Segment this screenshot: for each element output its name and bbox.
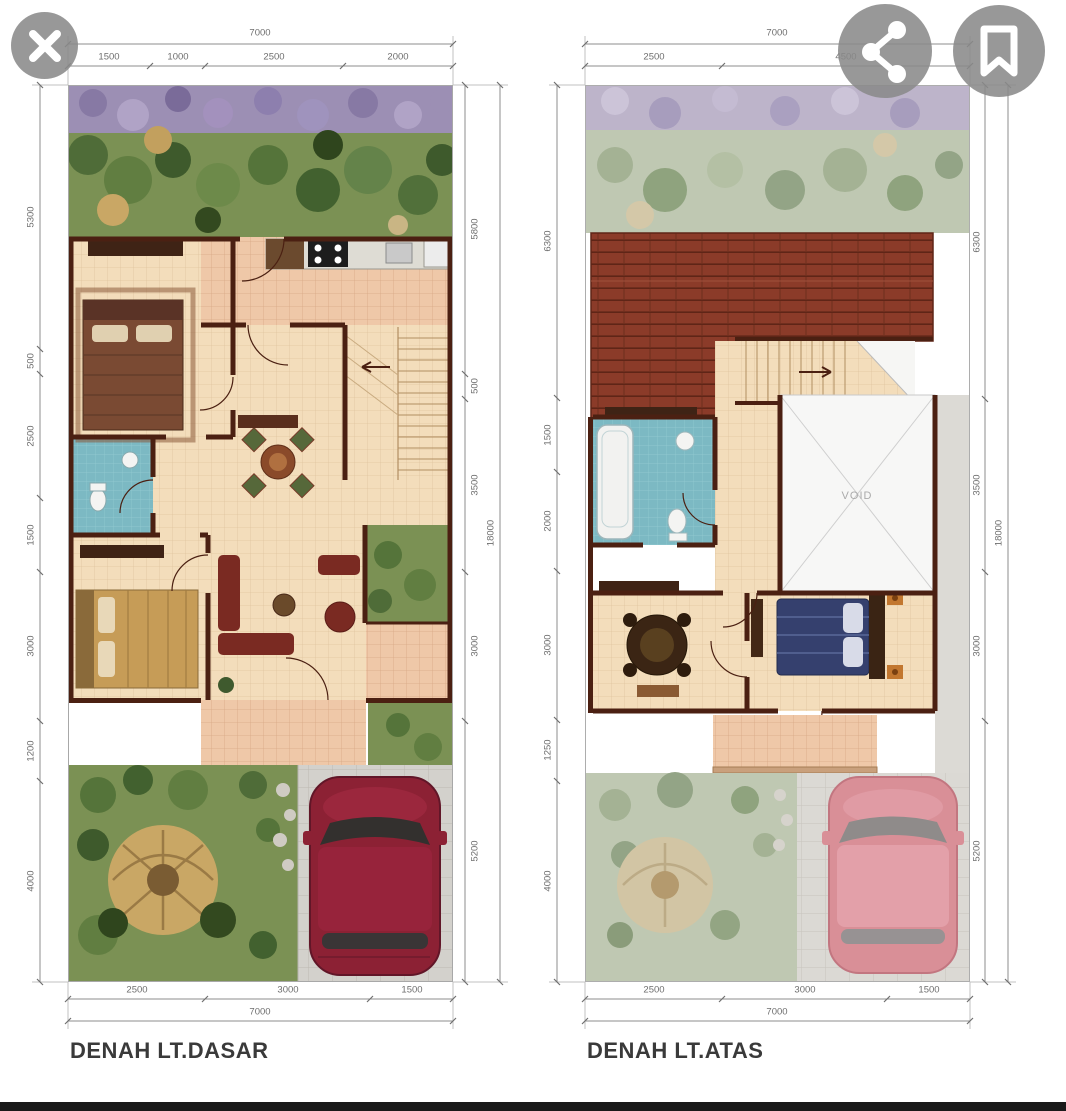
dim-label: 1500 bbox=[98, 52, 119, 62]
upper-floor-plan-image: VOID bbox=[585, 85, 970, 982]
bookmark-icon bbox=[953, 5, 1045, 97]
void-label: VOID bbox=[842, 490, 873, 502]
dim-label: 1250 bbox=[543, 739, 553, 760]
basin bbox=[122, 452, 138, 468]
front-garden-faded bbox=[586, 86, 969, 233]
car bbox=[303, 777, 447, 975]
bedroom-right-bed bbox=[777, 595, 885, 679]
dim-label: 2500 bbox=[26, 425, 36, 446]
dim-label: 1200 bbox=[26, 740, 36, 761]
dim-label: 3000 bbox=[26, 635, 36, 656]
dim-label: 2500 bbox=[263, 52, 284, 62]
fridge bbox=[424, 239, 448, 267]
dim-label: 4000 bbox=[543, 870, 553, 891]
dim-label: 1500 bbox=[918, 985, 939, 995]
back-garden-faded bbox=[586, 772, 797, 981]
upper-floor-title: DENAH LT.ATAS bbox=[587, 1038, 763, 1064]
dim-label: 7000 bbox=[766, 28, 787, 38]
bedroom2-bed bbox=[76, 590, 198, 688]
dim-label: 2500 bbox=[126, 985, 147, 995]
dim-label: 7000 bbox=[766, 1007, 787, 1017]
dim-label: 3500 bbox=[470, 474, 480, 495]
hall-floor bbox=[715, 403, 780, 593]
dim-label: 1500 bbox=[401, 985, 422, 995]
dim-label: 6300 bbox=[543, 230, 553, 251]
share-button[interactable] bbox=[838, 4, 932, 98]
dim-label: 3500 bbox=[972, 474, 982, 495]
dim-label: 7000 bbox=[249, 28, 270, 38]
car-faded bbox=[822, 777, 964, 973]
wardrobe bbox=[88, 241, 183, 256]
toilet bbox=[90, 489, 106, 511]
basin bbox=[676, 432, 694, 450]
side-path bbox=[935, 395, 969, 773]
dim-label: 3000 bbox=[543, 634, 553, 655]
dim-label: 7000 bbox=[249, 1007, 270, 1017]
terrace-floor bbox=[201, 700, 366, 765]
dim-label: 500 bbox=[470, 378, 480, 394]
dim-label: 1000 bbox=[167, 52, 188, 62]
staircase bbox=[345, 327, 450, 480]
stove bbox=[308, 241, 348, 267]
bathroom-floor bbox=[68, 437, 153, 533]
ground-floor-plan-image bbox=[68, 85, 453, 982]
dim-label: 2000 bbox=[543, 510, 553, 531]
close-button[interactable] bbox=[11, 12, 78, 79]
dim-label: 18000 bbox=[994, 520, 1004, 546]
void-area: VOID bbox=[780, 395, 935, 593]
dim-label: 18000 bbox=[486, 520, 496, 546]
back-garden bbox=[69, 765, 298, 981]
dim-label: 5800 bbox=[470, 218, 480, 239]
dim-label: 6300 bbox=[972, 231, 982, 252]
dim-label: 2500 bbox=[643, 985, 664, 995]
dresser bbox=[80, 545, 164, 558]
bookmark-button[interactable] bbox=[953, 5, 1045, 97]
dim-label: 5200 bbox=[470, 840, 480, 861]
dim-label: 4000 bbox=[26, 870, 36, 891]
sink bbox=[386, 243, 412, 263]
front-garden bbox=[68, 86, 453, 237]
staircase bbox=[715, 341, 915, 403]
dim-label: 2500 bbox=[643, 52, 664, 62]
dim-label: 2000 bbox=[387, 52, 408, 62]
dim-label: 1500 bbox=[26, 524, 36, 545]
dim-label: 5300 bbox=[26, 206, 36, 227]
balcony bbox=[713, 715, 877, 773]
side-entry-floor bbox=[366, 623, 452, 700]
toilet bbox=[668, 509, 686, 533]
dim-label: 3000 bbox=[794, 985, 815, 995]
bottom-bar bbox=[0, 1102, 1066, 1111]
close-icon bbox=[12, 13, 78, 79]
sideboard bbox=[238, 415, 298, 428]
dim-label: 3000 bbox=[470, 635, 480, 656]
bathroom bbox=[593, 419, 715, 545]
dim-label: 1500 bbox=[543, 424, 553, 445]
share-icon bbox=[838, 4, 932, 98]
dim-label: 5200 bbox=[972, 840, 982, 861]
dim-label: 3000 bbox=[972, 635, 982, 656]
dim-label: 500 bbox=[26, 353, 36, 369]
dim-label: 3000 bbox=[277, 985, 298, 995]
image-viewer[interactable]: VOID bbox=[0, 0, 1066, 1111]
ground-floor-title: DENAH LT.DASAR bbox=[70, 1038, 268, 1064]
